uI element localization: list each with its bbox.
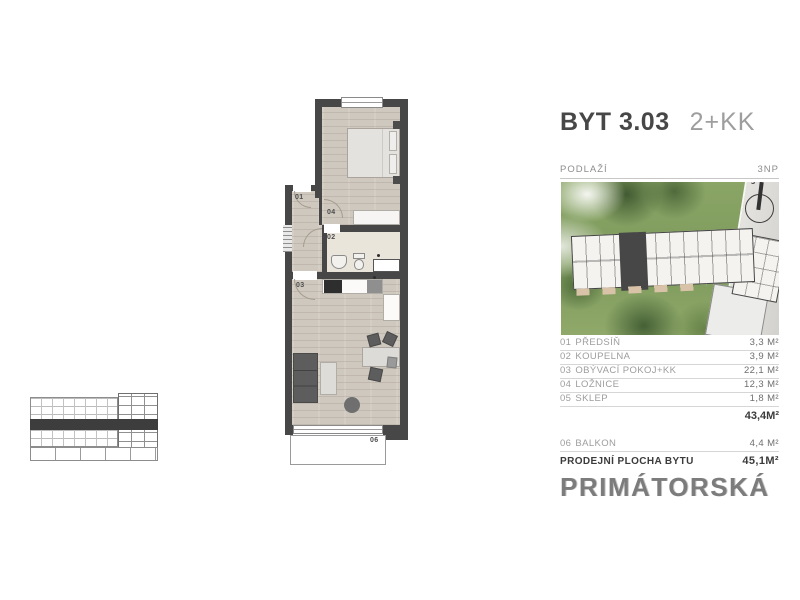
washing-machine (373, 259, 400, 272)
room-name: LOŽNICE (575, 379, 619, 390)
floor-value: 3NP (758, 164, 779, 175)
room-area: 3,3 M² (750, 337, 779, 348)
wall (315, 99, 322, 198)
legend-row: 02 KOUPELNA 3,9 M² (560, 351, 779, 365)
kitchen-sink (367, 280, 382, 293)
room-label-bath: 02 (327, 234, 335, 241)
brand-logo: PRIMÁTORSKÁ (560, 472, 770, 503)
elevation-base (30, 447, 158, 461)
room-name: OBÝVACÍ POKOJ+KK (575, 365, 676, 376)
nightstand (393, 121, 400, 129)
tap-dot (377, 254, 380, 257)
total-row: PRODEJNÍ PLOCHA BYTU 45,1M² (560, 452, 779, 467)
building-footprint (571, 228, 755, 290)
room-number: 06 (560, 438, 571, 449)
apartment-floorplan: 01 04 02 03 06 (283, 95, 413, 470)
wall (400, 99, 408, 440)
cooktop (324, 280, 342, 293)
room-number: 01 (560, 337, 571, 348)
total-label: PRODEJNÍ PLOCHA BYTU (560, 456, 694, 467)
compass-north-label: S (751, 182, 755, 186)
dining-chair (386, 357, 397, 369)
room-label-bedroom: 04 (327, 209, 335, 216)
room-number: 02 (560, 351, 571, 362)
wall (319, 195, 322, 225)
total-value: 45,1M² (742, 455, 779, 467)
room-area: 3,9 M² (750, 351, 779, 362)
wall (285, 425, 293, 435)
room-number: 05 (560, 393, 571, 404)
dining-chair (368, 367, 383, 382)
balcony-window (293, 425, 383, 434)
bedroom-window (341, 97, 383, 108)
room-name: PŘEDSÍŇ (575, 337, 620, 348)
room-label-balcony: 06 (370, 437, 378, 444)
room-name: BALKON (575, 438, 616, 449)
pillow (389, 131, 397, 151)
tap-dot (373, 276, 376, 279)
shaft-hatch (283, 225, 292, 252)
room-area: 4,4 M² (750, 438, 779, 449)
room-area-legend: 01 PŘEDSÍŇ 3,3 M² 02 KOUPELNA 3,9 M² 03 … (560, 337, 779, 467)
room-name: SKLEP (575, 393, 608, 404)
unit-disposition: 2+KK (690, 108, 756, 137)
unit-divisions (572, 229, 754, 289)
legend-row: 03 OBÝVACÍ POKOJ+KK 22,1 M² (560, 365, 779, 379)
legend-row: 01 PŘEDSÍŇ 3,3 M² (560, 337, 779, 351)
toilet (354, 259, 364, 270)
room-number: 03 (560, 365, 571, 376)
legend-row: 04 LOŽNICE 12,3 M² (560, 379, 779, 393)
room-label-hall: 01 (295, 194, 303, 201)
pillow (389, 154, 397, 174)
bathroom-door-opening (324, 224, 340, 233)
coffee-table (320, 362, 337, 395)
legend-row: 05 SKLEP 1,8 M² (560, 393, 779, 407)
subtotal-area: 43,4M² (560, 407, 779, 422)
floor-label: PODLAŽÍ (560, 164, 608, 175)
legend-row: 06 BALKON 4,4 M² (560, 438, 779, 452)
pouf (344, 397, 360, 413)
room-name: KOUPELNA (575, 351, 630, 362)
unit-title: BYT 3.03 2+KK (560, 108, 755, 137)
room-area: 1,8 M² (750, 393, 779, 404)
room-area: 12,3 M² (744, 379, 779, 390)
room-area: 22,1 M² (744, 365, 779, 376)
wall (285, 185, 292, 435)
room-number: 04 (560, 379, 571, 390)
fridge-cabinet (383, 294, 400, 321)
sofa (293, 353, 318, 403)
site-plan-photo: S (561, 182, 779, 335)
floorplan-sheet: 01 04 02 03 06 BYT 3.03 2+KK PODLAŽÍ 3NP… (0, 0, 800, 600)
highlighted-floor-band (30, 419, 158, 430)
nightstand (393, 176, 400, 184)
highlighted-unit (619, 232, 649, 291)
room-label-living: 03 (296, 282, 304, 289)
wardrobe-bench (353, 210, 400, 225)
wall (383, 425, 408, 440)
legend-extras: 06 BALKON 4,4 M² PRODEJNÍ PLOCHA BYTU 45… (560, 438, 779, 467)
building-elevation-diagram (30, 393, 160, 465)
floor-row: PODLAŽÍ 3NP (560, 164, 779, 179)
unit-number: BYT 3.03 (560, 108, 670, 137)
